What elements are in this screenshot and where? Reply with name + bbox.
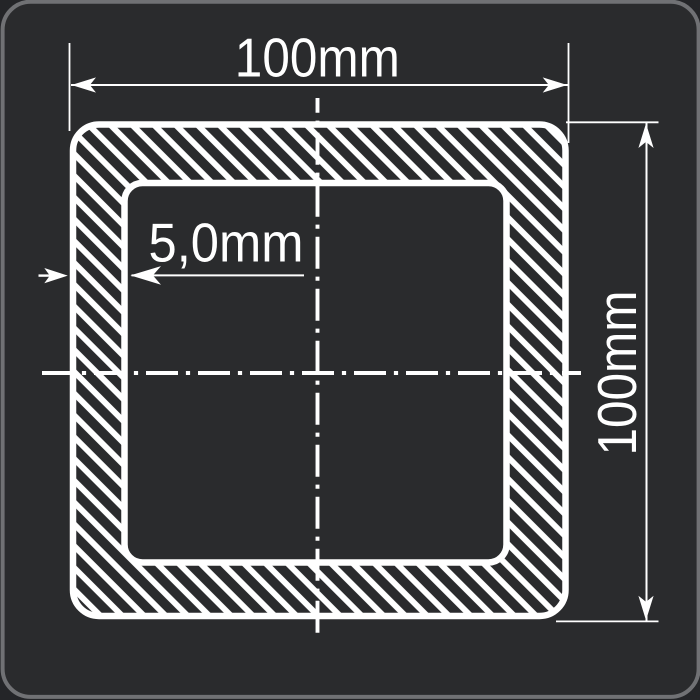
svg-text:5,0mm: 5,0mm bbox=[149, 212, 304, 274]
svg-text:100mm: 100mm bbox=[586, 291, 648, 456]
svg-text:100mm: 100mm bbox=[235, 27, 400, 89]
